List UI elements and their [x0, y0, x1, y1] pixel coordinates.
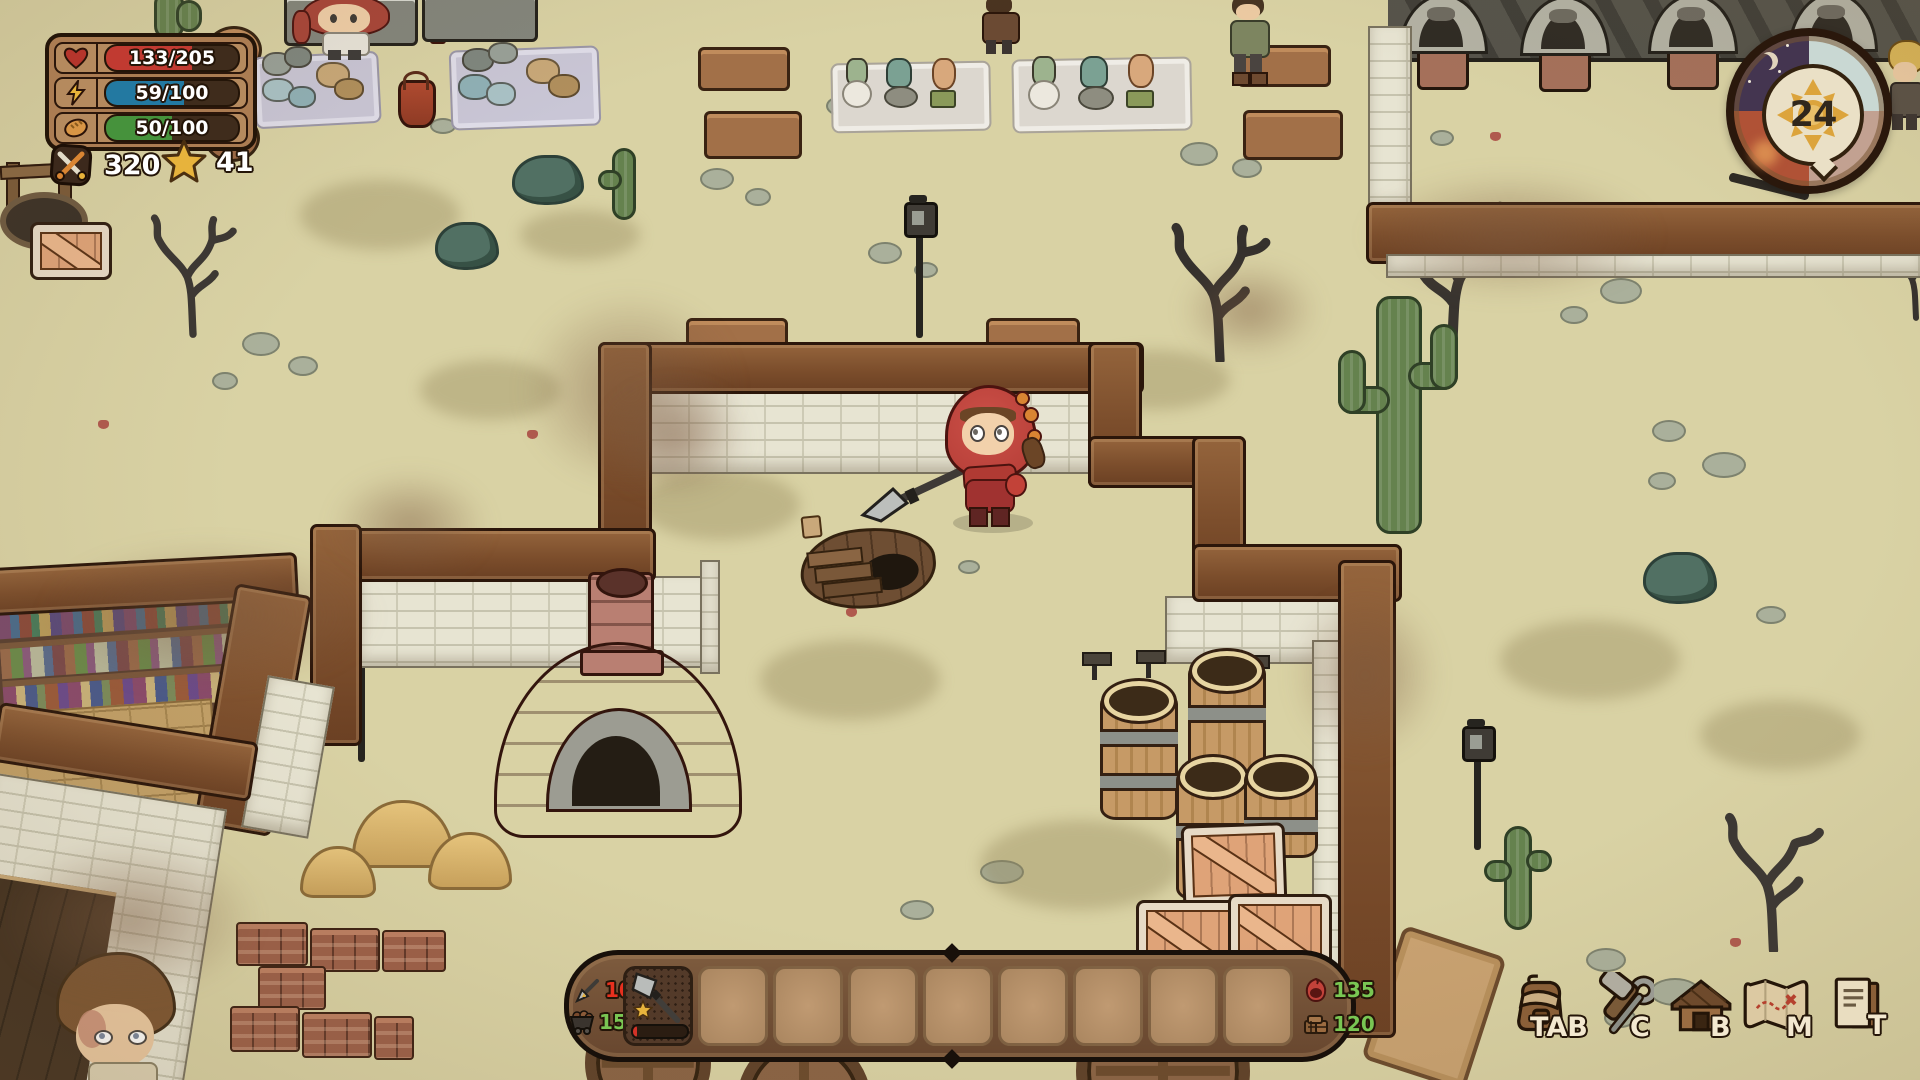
brick-pile	[258, 966, 326, 1010]
pebble	[1756, 606, 1786, 624]
tall-cactus	[1334, 268, 1454, 533]
bench	[698, 47, 790, 91]
hotbar-slot-6[interactable]	[998, 966, 1068, 1046]
durability-fill	[633, 1026, 637, 1037]
hotbar-slot-1[interactable]	[623, 966, 693, 1046]
tasks-button[interactable]: T	[1828, 972, 1886, 1040]
dead-tree	[1166, 222, 1274, 362]
npc-boy[interactable]	[36, 944, 186, 1080]
spear-icon	[857, 463, 967, 523]
durability-bar	[631, 1024, 689, 1039]
hotbar-slot-8[interactable]	[1148, 966, 1218, 1046]
hood-counter: 135	[1303, 977, 1375, 1003]
dead-tree	[1716, 812, 1831, 952]
brick-kiln	[488, 560, 748, 840]
health-row: 133/205	[54, 42, 248, 74]
star-icon	[160, 138, 208, 186]
npc-villager[interactable]	[1224, 0, 1274, 90]
npc-villager[interactable]	[980, 0, 1020, 60]
wall-brick-face	[1368, 26, 1412, 212]
dead-tree	[148, 202, 238, 347]
bread-icon	[56, 114, 98, 142]
pebble	[958, 560, 980, 574]
pebble	[1652, 420, 1686, 442]
crossed-swords-icon	[48, 142, 94, 188]
pebble	[1560, 306, 1588, 324]
pebble	[900, 900, 934, 920]
pebble	[868, 242, 902, 264]
pebble	[1586, 948, 1626, 972]
pebble	[242, 332, 280, 356]
energy-row: 59/100	[54, 77, 248, 109]
brick-pile	[236, 922, 308, 966]
pebble	[1648, 472, 1676, 490]
market-stall	[422, 0, 538, 42]
hotbar-slot-2[interactable]	[698, 966, 768, 1046]
building-key-label: B	[1710, 1012, 1731, 1043]
hotbar: 10 150 135 120	[564, 950, 1356, 1062]
pebble	[212, 372, 238, 390]
brick-pile	[302, 1012, 372, 1058]
desert-tuft	[1490, 132, 1501, 141]
hotbar-slot-7[interactable]	[1073, 966, 1143, 1046]
pebble	[288, 356, 318, 376]
sand-stain	[760, 640, 940, 720]
pebble	[1180, 142, 1218, 166]
pebble	[1600, 278, 1642, 304]
game-viewport: 133/205 59/100 50/100 320 41	[0, 0, 1920, 1080]
crafting-button[interactable]: C	[1586, 972, 1654, 1042]
stats-panel: 133/205 59/100 50/100	[45, 33, 257, 151]
npc-redhead-girl[interactable]	[292, 0, 407, 62]
hotbar-slot-9[interactable]	[1223, 966, 1293, 1046]
bush	[1643, 552, 1717, 604]
sand-stain	[1500, 620, 1680, 700]
pebble	[745, 188, 771, 206]
food-value: 50/100	[106, 116, 238, 140]
menu-shortcuts: TAB C B M T	[1508, 970, 1908, 1060]
sand-stain	[420, 360, 560, 420]
supply-counter: 120	[1303, 1011, 1375, 1037]
bench	[1243, 110, 1343, 160]
small-cactus	[1484, 826, 1548, 928]
combat-power-badge: 320	[48, 142, 160, 188]
star-badge: 41	[160, 138, 254, 186]
barrel	[1100, 692, 1178, 820]
combat-power-value: 320	[104, 150, 160, 181]
health-bar: 133/205	[104, 44, 240, 72]
hotbar-slot-5[interactable]	[923, 966, 993, 1046]
heart-icon	[56, 44, 98, 72]
tasks-key-label: T	[1868, 1010, 1886, 1041]
wooden-crate	[30, 222, 112, 280]
building-button[interactable]: B	[1668, 976, 1734, 1040]
bush	[435, 222, 499, 270]
cup	[800, 515, 822, 539]
wall-brick-face	[1386, 254, 1920, 278]
day-bubble: 24	[1762, 64, 1864, 166]
bench	[704, 111, 802, 159]
sand-stain	[980, 820, 1180, 910]
pebble	[1702, 452, 1746, 478]
map-key-label: M	[1786, 1012, 1813, 1043]
hood-icon	[1303, 977, 1329, 1003]
small-cactus	[598, 148, 644, 218]
hotbar-slots	[623, 966, 1293, 1046]
inventory-button[interactable]: TAB	[1508, 974, 1572, 1042]
npc-blond-kid[interactable]	[1888, 40, 1920, 152]
energy-value: 59/100	[106, 81, 238, 105]
supply-count: 120	[1333, 1012, 1375, 1036]
wall-cap	[1338, 560, 1396, 1038]
spear-icon	[575, 977, 601, 1003]
day-number: 24	[1766, 68, 1860, 162]
pebble	[1430, 130, 1454, 146]
star-count-value: 41	[216, 147, 254, 178]
hotbar-slot-3[interactable]	[773, 966, 843, 1046]
brick-pile	[374, 1016, 414, 1060]
bolt-icon	[56, 79, 98, 107]
bush	[512, 155, 584, 205]
sand-stain	[1700, 700, 1860, 770]
map-button[interactable]: M	[1742, 974, 1810, 1040]
small-cactus	[146, 0, 198, 36]
desert-tuft	[98, 420, 109, 429]
supply-crate-icon	[1303, 1011, 1329, 1037]
day-night-clock: 24	[1726, 28, 1892, 194]
player-character[interactable]	[915, 385, 1075, 545]
hood-count: 135	[1333, 978, 1375, 1002]
pebble	[1232, 158, 1262, 178]
desert-tuft	[527, 430, 538, 439]
health-value: 133/205	[106, 46, 238, 70]
energy-bar: 59/100	[104, 79, 240, 107]
crafting-key-label: C	[1630, 1012, 1650, 1043]
minecart-icon	[569, 1009, 595, 1035]
pebble	[700, 168, 734, 190]
bucket	[398, 80, 436, 128]
inventory-key-label: TAB	[1530, 1012, 1588, 1043]
sand-stain	[640, 470, 800, 540]
item-quality-star-icon	[633, 1000, 653, 1020]
brick-pile	[382, 930, 446, 972]
brick-pile	[230, 1006, 300, 1052]
hotbar-slot-4[interactable]	[848, 966, 918, 1046]
